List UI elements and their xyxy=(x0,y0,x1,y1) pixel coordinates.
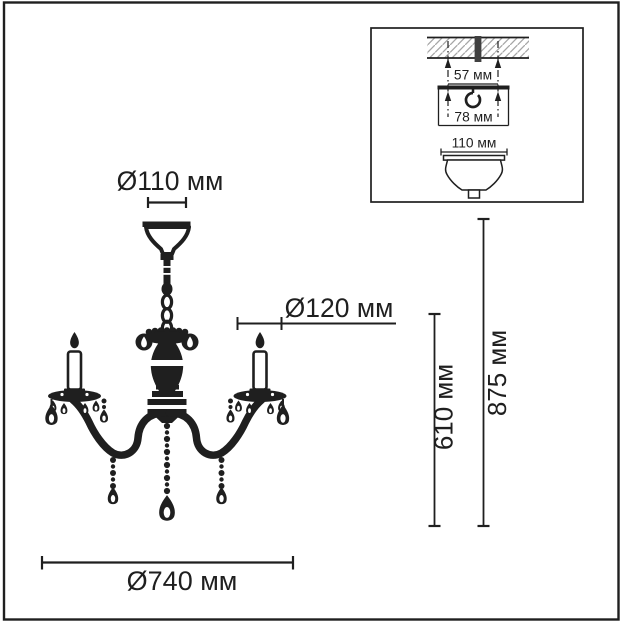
dimension-hole-spacing: 57 мм xyxy=(448,68,498,85)
canopy-diameter-label: Ø110 мм xyxy=(117,166,224,196)
arm-assembly-right xyxy=(170,332,290,504)
hole-spacing-label: 57 мм xyxy=(454,68,492,83)
dimension-cup-diameter: Ø120 мм xyxy=(238,293,397,330)
ceiling-slab xyxy=(427,36,529,62)
dimension-total-height: 875 мм xyxy=(478,219,513,526)
center-bead-chain xyxy=(159,423,175,521)
center-crystal-drop xyxy=(159,495,175,521)
arm-bead-strand xyxy=(108,457,118,504)
center-vase xyxy=(149,336,185,397)
anchor-bolt xyxy=(475,36,482,62)
bracket-width-label: 78 мм xyxy=(454,110,492,125)
chandelier-drawing xyxy=(45,222,289,521)
flame-icon xyxy=(70,332,79,348)
dimension-canopy-diameter: Ø110 мм xyxy=(117,166,224,208)
canopy xyxy=(143,222,191,255)
fixture-width-label: Ø740 мм xyxy=(127,566,238,596)
cup-diameter-label: Ø120 мм xyxy=(285,293,394,323)
diagram-canvas: Ø110 мм Ø120 мм Ø740 мм 610 мм 875 мм xyxy=(0,0,623,623)
inner-cup-strand xyxy=(100,399,108,423)
body-height-label: 610 мм xyxy=(429,364,459,450)
dimension-body-height: 610 мм xyxy=(429,314,459,526)
total-height-label: 875 мм xyxy=(482,330,512,416)
dimension-fixture-width: Ø740 мм xyxy=(42,556,293,596)
mounting-inset: 57 мм 78 мм 110 мм xyxy=(371,28,583,202)
candle xyxy=(64,332,85,397)
hanging-chain xyxy=(161,254,174,335)
dimension-diagram: Ø110 мм Ø120 мм Ø740 мм 610 мм 875 мм xyxy=(0,0,623,623)
outer-crystal-drop xyxy=(45,399,57,425)
arm-assembly-left xyxy=(45,332,165,504)
inset-canopy-width-label: 110 мм xyxy=(452,136,497,151)
